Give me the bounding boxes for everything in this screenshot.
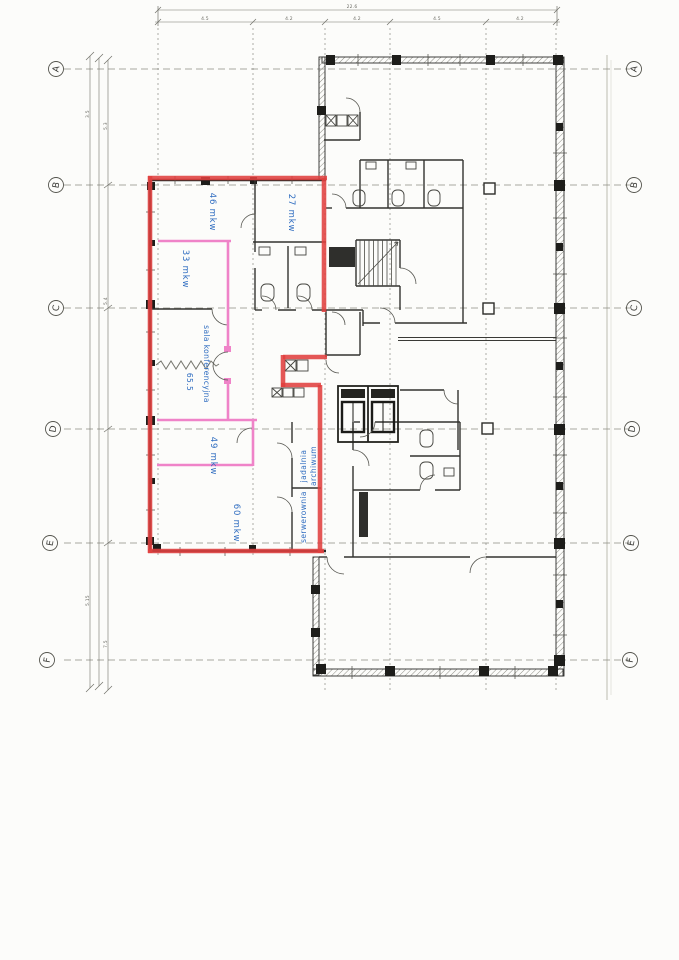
row-label-b: B [52, 181, 63, 189]
elevator-bank [338, 386, 398, 442]
row-label-e: E [46, 539, 57, 547]
dim-left: 5.15 [85, 595, 91, 606]
conference-room-label: sala konferencyjna [202, 325, 211, 403]
room-46-label: 46 mkw [207, 193, 217, 231]
dim-segment: 4.5 [201, 16, 209, 22]
dim-segment: 4.2 [285, 16, 293, 22]
row-label-e-right: E [627, 539, 638, 547]
dim-segment: 4.2 [516, 16, 524, 22]
dim-left: 5.4 [103, 297, 109, 305]
room-27-label: 27 mkw [286, 194, 296, 232]
dim-left: 3.5 [85, 110, 91, 118]
dim-left: 5.3 [103, 122, 109, 130]
row-label-d-right: D [627, 425, 638, 434]
grid-row-labels [40, 62, 642, 668]
room-49-label: 49 mkw [208, 437, 218, 475]
row-label-c-right: C [630, 304, 641, 312]
free-columns [482, 183, 495, 434]
row-label-a-right: A [630, 64, 641, 73]
row-label-c: C [52, 304, 63, 312]
room-60-label: 60 mkw [231, 504, 241, 542]
archive-room-label: archiwum [309, 446, 318, 486]
row-label-b-right: B [630, 181, 641, 189]
scan-edge-shadow [607, 55, 611, 700]
exterior-walls [150, 57, 564, 676]
room-33-label: 33 mkw [180, 250, 190, 288]
overall-dimension: 22.6 [347, 4, 358, 10]
dim-segment: 4.2 [353, 16, 361, 22]
conference-room-area: 65.5 [185, 373, 194, 391]
dining-room-label: jadalnia [299, 450, 308, 484]
staircase [358, 240, 398, 286]
row-label-d: D [48, 425, 59, 434]
dim-segment: 4.5 [433, 16, 441, 22]
scanned-floorplan-page: 22.6 4.5 4.2 4.2 4.5 4.2 3.5 5.3 5.4 5.1… [0, 0, 679, 960]
row-label-f-right: F [626, 657, 637, 664]
server-room-label: serwerownia [299, 491, 308, 543]
row-label-f: F [43, 657, 54, 664]
floorplan-drawing: 22.6 4.5 4.2 4.2 4.5 4.2 3.5 5.3 5.4 5.1… [0, 0, 679, 960]
row-label-a: A [52, 64, 63, 73]
dim-left: 7.5 [103, 640, 109, 648]
